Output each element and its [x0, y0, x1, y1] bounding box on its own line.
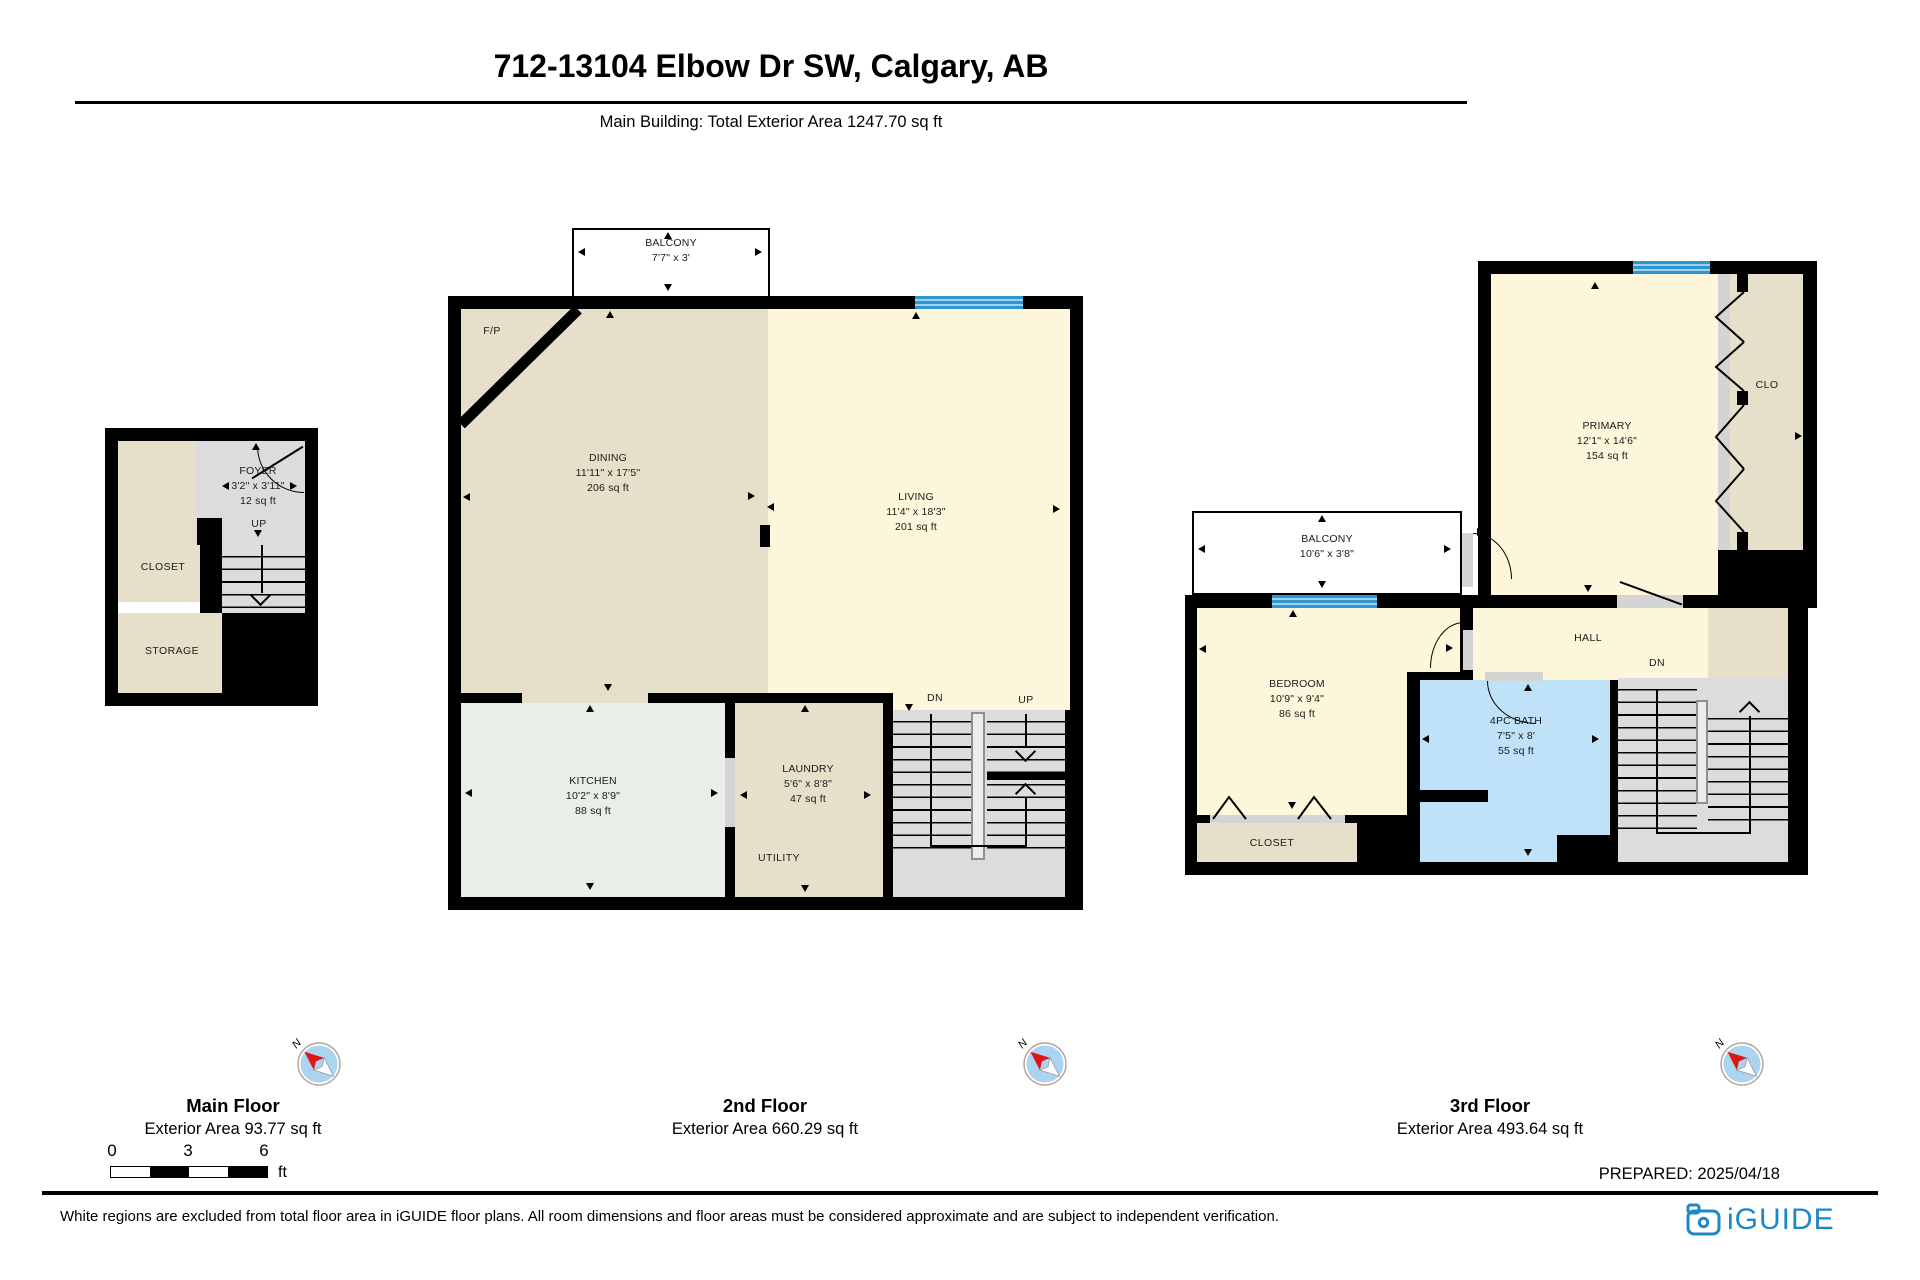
scale-seg-4 — [228, 1167, 267, 1177]
main-up-label: UP — [251, 518, 266, 530]
dining-label: DINING 11'11" x 17'5" 206 sq ft — [576, 451, 641, 497]
laundry-arrow-left-icon — [740, 791, 747, 799]
living-area: 201 sq ft — [886, 521, 945, 536]
second-stairs-divider — [987, 772, 1065, 780]
third-closet-label: CLOSET — [1250, 837, 1294, 849]
hall-bath-door-opening — [1485, 672, 1543, 681]
dining-arrow-right-icon — [748, 492, 755, 500]
third-stairs-path-left — [1656, 690, 1658, 834]
hall-label: HALL — [1574, 632, 1602, 644]
clo-label: CLO — [1756, 379, 1779, 391]
second-up-label: UP — [1018, 694, 1033, 706]
bath-dims: 7'5" x 8' — [1490, 729, 1542, 744]
third-dn-label: DN — [1649, 657, 1665, 669]
second-dn-label: DN — [927, 692, 943, 704]
third-floor-area: Exterior Area 493.64 sq ft — [1397, 1120, 1583, 1138]
bath-arrow-right-icon — [1592, 735, 1599, 743]
third-stairs-path-bottom — [1656, 832, 1751, 834]
hall-arrow-down-icon — [1584, 585, 1592, 592]
living-label: LIVING 11'4" x 18'3" 201 sq ft — [886, 490, 945, 536]
kitchen-arrow-left-icon — [465, 789, 472, 797]
footer-disclaimer: White regions are excluded from total fl… — [60, 1208, 1560, 1225]
primary-area: 154 sq ft — [1577, 450, 1637, 465]
second-stairs-left-run — [893, 710, 972, 856]
bedroom-dims: 10'9" x 9'4" — [1269, 692, 1325, 707]
main-closet-divider — [118, 602, 200, 613]
kitchen-laundry-top-wall — [648, 693, 893, 703]
third-stairs-right-run — [1708, 707, 1788, 830]
laundry-arrow-down-icon — [801, 885, 809, 892]
main-storage-label: STORAGE — [145, 645, 199, 657]
primary-label: PRIMARY 12'1" x 14'6" 154 sq ft — [1577, 419, 1637, 465]
clo-wall-stub-bottom — [1737, 532, 1748, 550]
scale-seg-2 — [150, 1167, 189, 1177]
living-window — [915, 296, 1023, 309]
dining-dims: 11'11" x 17'5" — [576, 466, 641, 481]
compass-main-icon: N — [289, 1034, 345, 1090]
primary-dims: 12'1" x 14'6" — [1577, 434, 1637, 449]
svg-text:N: N — [1016, 1037, 1030, 1051]
balcony2-arrow-left-icon — [578, 248, 585, 256]
second-balcony-label: BALCONY 7'7" x 3' — [645, 236, 697, 266]
svg-text:N: N — [1713, 1037, 1727, 1051]
bedroom-arrow-up-icon — [1289, 610, 1297, 617]
bath-arrow-left-icon — [1422, 735, 1429, 743]
kitchen-name: KITCHEN — [566, 774, 620, 789]
second-stairs-path-left — [930, 714, 932, 847]
bath-notch-wall — [1557, 835, 1610, 862]
floor-plan-page: 712-13104 Elbow Dr SW, Calgary, AB Main … — [0, 0, 1920, 1280]
laundry-area: 47 sq ft — [782, 793, 833, 808]
foyer-dim-arrow-right-icon — [290, 482, 297, 490]
clo-bifold-doors-icon — [1708, 274, 1748, 550]
compass-second-icon: N — [1015, 1034, 1071, 1090]
second-stairs-railing — [971, 712, 985, 860]
balcony-primary-door-opening — [1462, 533, 1473, 587]
living-dims: 11'4" x 18'3" — [886, 505, 945, 520]
prepared-date: PREPARED: 2025/04/18 — [1480, 1165, 1780, 1184]
foyer-dims: 3'2" x 3'11" — [231, 479, 284, 494]
main-floor-name: Main Floor — [83, 1095, 383, 1117]
second-balcony-dims: 7'7" x 3' — [645, 251, 697, 266]
bedroom-window — [1272, 595, 1377, 608]
primary-arrow-right-icon — [1795, 432, 1802, 440]
bedroom-area: 86 sq ft — [1269, 708, 1325, 723]
third-floor-caption: 3rd Floor Exterior Area 493.64 sq ft — [1340, 1095, 1640, 1139]
dining-room — [461, 309, 768, 703]
closet-bifold-doors-icon — [1200, 793, 1350, 821]
bath-area: 55 sq ft — [1490, 745, 1542, 760]
fireplace-label: F/P — [483, 325, 501, 337]
third-stairs-railing — [1696, 700, 1708, 804]
clo-wall-stub-mid — [1737, 391, 1748, 405]
balcony3-arrow-down-icon — [1318, 581, 1326, 588]
kitchen-arrow-right-icon — [711, 789, 718, 797]
third-balcony-label: BALCONY 10'6" x 3'8" — [1300, 532, 1354, 562]
living-arrow-up-icon — [912, 312, 920, 319]
page-subtitle: Main Building: Total Exterior Area 1247.… — [75, 113, 1467, 132]
utility-label: UTILITY — [758, 852, 800, 864]
kitchen-arrow-down-icon — [586, 883, 594, 890]
bath-arrow-down-icon — [1524, 849, 1532, 856]
bedroom-room-upper — [1197, 608, 1460, 672]
living-name: LIVING — [886, 490, 945, 505]
third-balcony-name: BALCONY — [1300, 532, 1354, 547]
scale-tick-3: 3 — [183, 1141, 192, 1161]
foyer-area: 12 sq ft — [231, 495, 284, 510]
balcony-door-arrow-icon — [1477, 528, 1484, 536]
bath-stub-wall — [1420, 790, 1488, 802]
kitchen-top-wall-left — [461, 693, 522, 703]
bedroom-arrow-left-icon — [1199, 645, 1206, 653]
balcony2-arrow-down-icon — [664, 284, 672, 291]
balcony3-arrow-up-icon — [1318, 515, 1326, 522]
living-arrow-left-icon — [767, 503, 774, 511]
balcony2-arrow-up-icon — [664, 232, 672, 239]
kitchen-label: KITCHEN 10'2" x 8'9" 88 sq ft — [566, 774, 620, 820]
second-floor-caption: 2nd Floor Exterior Area 660.29 sq ft — [615, 1095, 915, 1139]
second-dn-arrow-icon — [905, 704, 913, 711]
dining-name: DINING — [576, 451, 641, 466]
svg-text:N: N — [290, 1037, 304, 1051]
iguide-logo-text: iGUIDE — [1727, 1203, 1835, 1237]
foyer-name: FOYER — [231, 464, 284, 479]
laundry-door-opening — [725, 758, 735, 827]
laundry-name: LAUNDRY — [782, 762, 833, 777]
kitchen-dims: 10'2" x 8'9" — [566, 789, 620, 804]
iguide-logo: iGUIDE — [1683, 1202, 1835, 1238]
iguide-camera-icon — [1683, 1202, 1723, 1238]
dining-arrow-up-icon — [606, 311, 614, 318]
title-divider — [75, 101, 1467, 104]
compass-third-icon: N — [1712, 1034, 1768, 1090]
bedroom-hall-door-opening — [1463, 630, 1473, 670]
bedroom-name: BEDROOM — [1269, 677, 1325, 692]
hall-room — [1473, 608, 1708, 680]
clo-wall-stub-top — [1737, 274, 1748, 292]
scale-seg-3 — [189, 1167, 228, 1177]
balcony2-arrow-right-icon — [755, 248, 762, 256]
foyer-dim-arrow-left-icon — [222, 482, 229, 490]
scale-tick-6: 6 — [259, 1141, 268, 1161]
footer-divider — [42, 1191, 1878, 1195]
main-wall-stub — [197, 518, 222, 545]
primary-window — [1633, 261, 1710, 274]
main-up-arrow-icon — [254, 530, 262, 537]
laundry-arrow-right-icon — [864, 791, 871, 799]
main-floor-caption: Main Floor Exterior Area 93.77 sq ft — [83, 1095, 383, 1139]
scale-unit: ft — [278, 1164, 287, 1182]
kitchen-arrow-up-icon — [586, 705, 594, 712]
second-floor-area: Exterior Area 660.29 sq ft — [672, 1120, 858, 1138]
scale-tick-0: 0 — [107, 1141, 116, 1161]
living-arrow-right-icon — [1053, 505, 1060, 513]
scale-seg-1 — [111, 1167, 150, 1177]
balcony3-arrow-left-icon — [1198, 545, 1205, 553]
second-floor-name: 2nd Floor — [615, 1095, 915, 1117]
laundry-stairs-wall — [883, 693, 893, 897]
dining-arrow-left-icon — [463, 493, 470, 501]
bedroom-bath-wall — [1407, 672, 1420, 875]
foyer-label: FOYER 3'2" x 3'11" 12 sq ft — [231, 464, 284, 510]
second-stairs-path-rbot — [1025, 798, 1027, 847]
laundry-label: LAUNDRY 5'6" x 8'8" 47 sq ft — [782, 762, 833, 808]
third-floor-name: 3rd Floor — [1340, 1095, 1640, 1117]
second-stairs-path-bottom — [930, 845, 1027, 847]
foyer-dim-arrow-up-icon — [252, 443, 260, 450]
laundry-dims: 5'6" x 8'8" — [782, 777, 833, 792]
dining-arrow-down-icon — [604, 684, 612, 691]
bedroom-door-arrow-icon — [1446, 644, 1453, 652]
main-floor-area: Exterior Area 93.77 sq ft — [144, 1120, 321, 1138]
bedroom-label: BEDROOM 10'9" x 9'4" 86 sq ft — [1269, 677, 1325, 723]
primary-name: PRIMARY — [1577, 419, 1637, 434]
dining-area: 206 sq ft — [576, 482, 641, 497]
balcony3-arrow-right-icon — [1444, 545, 1451, 553]
kitchen-area: 88 sq ft — [566, 805, 620, 820]
laundry-arrow-up-icon — [801, 705, 809, 712]
third-stairs-path-right — [1749, 716, 1751, 834]
dining-living-wall-stub — [760, 525, 770, 547]
main-closet-room — [118, 441, 200, 602]
primary-arrow-up-icon — [1591, 282, 1599, 289]
main-closet-label: CLOSET — [141, 561, 185, 573]
third-balcony-dims: 10'6" x 3'8" — [1300, 547, 1354, 562]
scale-bar — [110, 1166, 268, 1178]
page-title: 712-13104 Elbow Dr SW, Calgary, AB — [75, 48, 1467, 85]
